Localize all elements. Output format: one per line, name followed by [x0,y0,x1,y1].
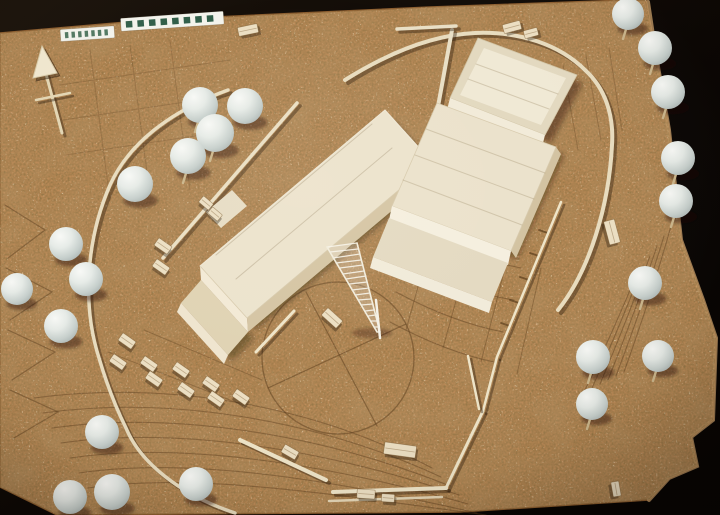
site-model-photo: Architectural site model photograph: cor… [0,0,720,515]
photo-vignette [0,0,720,515]
model-svg [0,0,720,515]
